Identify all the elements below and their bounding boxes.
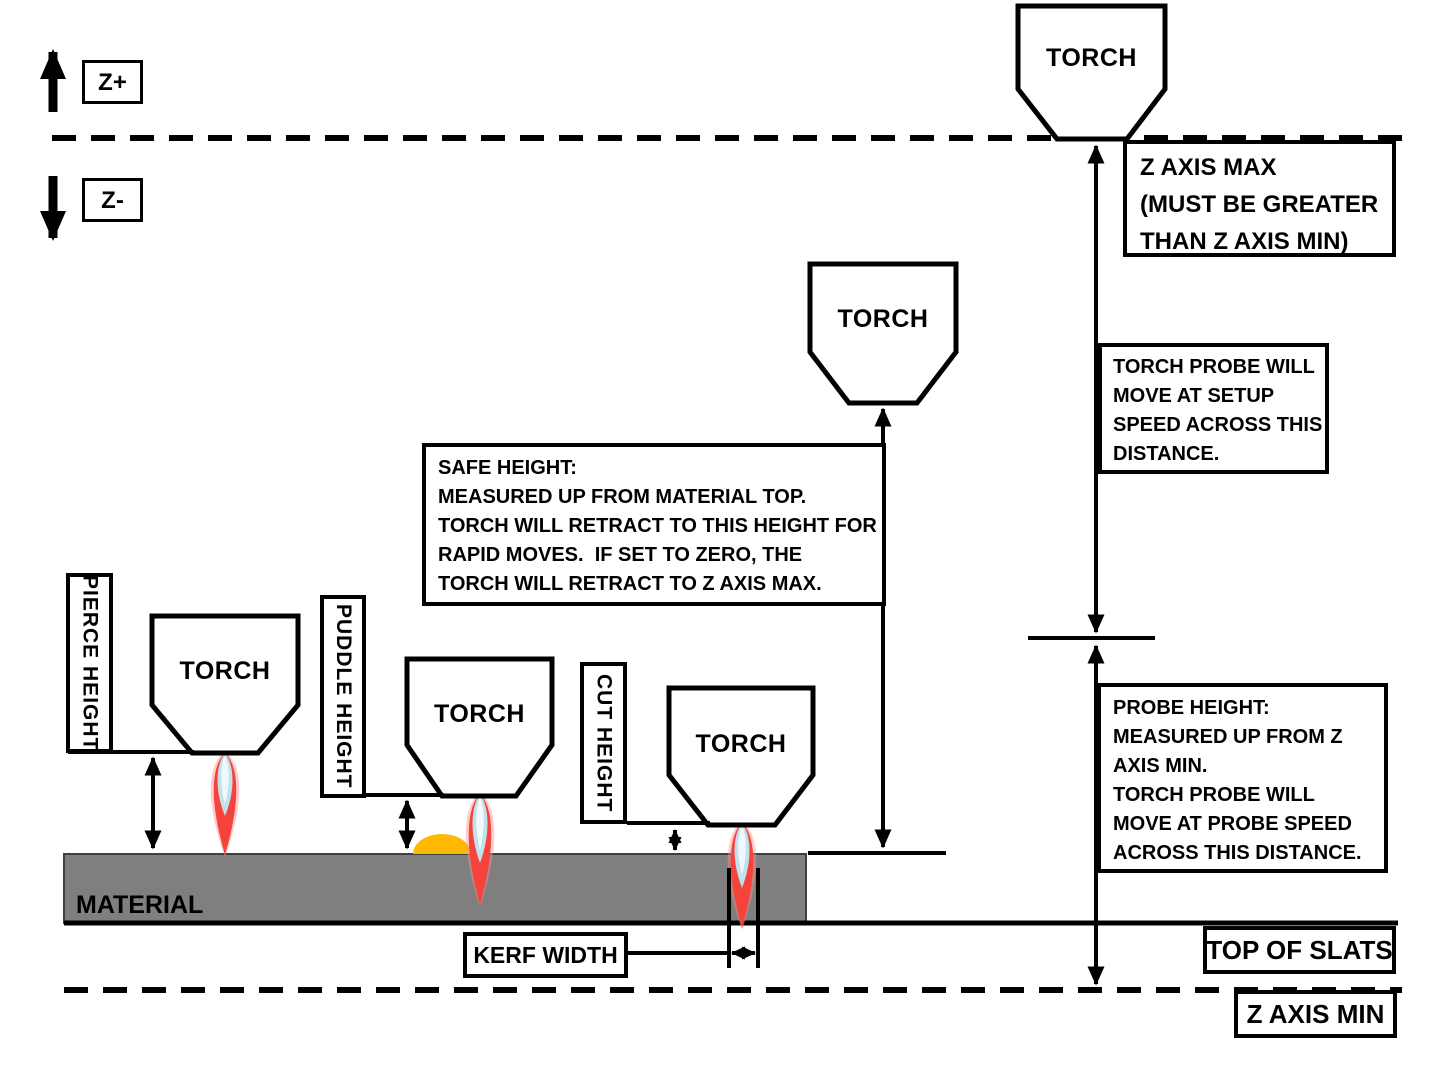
torch-height-diagram: Z+ Z- TORCH TORCH TORCH TORCH TORCH Z AX… [0, 0, 1436, 1078]
torch-safe-label: TORCH [810, 305, 956, 334]
pierce-height-label-box: PIERCE HEIGHT [66, 573, 113, 753]
top-of-slats-callout: TOP OF SLATS [1203, 926, 1396, 974]
safe-height-callout: SAFE HEIGHT: MEASURED UP FROM MATERIAL T… [422, 443, 886, 606]
torch-pierce-label: TORCH [152, 657, 298, 686]
puddle-height-label-box: PUDDLE HEIGHT [320, 595, 366, 798]
z-axis-min-callout: Z AXIS MIN [1234, 990, 1397, 1038]
z-minus-badge: Z- [82, 178, 143, 222]
cut-height-label-box: CUT HEIGHT [580, 662, 627, 824]
kerf-width-callout: KERF WIDTH [463, 932, 628, 978]
z-plus-badge: Z+ [82, 60, 143, 104]
torch-puddle-label: TORCH [407, 700, 552, 729]
pierce-height-label: PIERCE HEIGHT [78, 575, 102, 751]
torch-probe-callout: TORCH PROBE WILL MOVE AT SETUP SPEED ACR… [1098, 343, 1329, 474]
puddle-shape [413, 834, 471, 854]
material-label: MATERIAL [76, 891, 203, 920]
z-minus-label: Z- [101, 186, 124, 215]
puddle-height-label: PUDDLE HEIGHT [331, 604, 355, 789]
probe-height-callout: PROBE HEIGHT: MEASURED UP FROM Z AXIS MI… [1097, 683, 1388, 873]
cut-height-label: CUT HEIGHT [592, 674, 616, 812]
z-axis-max-callout: Z AXIS MAX (MUST BE GREATER THAN Z AXIS … [1123, 140, 1396, 257]
torch-cut-label: TORCH [669, 730, 813, 759]
z-plus-label: Z+ [98, 68, 127, 97]
pierce-flame-icon [211, 751, 240, 857]
torch-top-label: TORCH [1018, 44, 1165, 73]
